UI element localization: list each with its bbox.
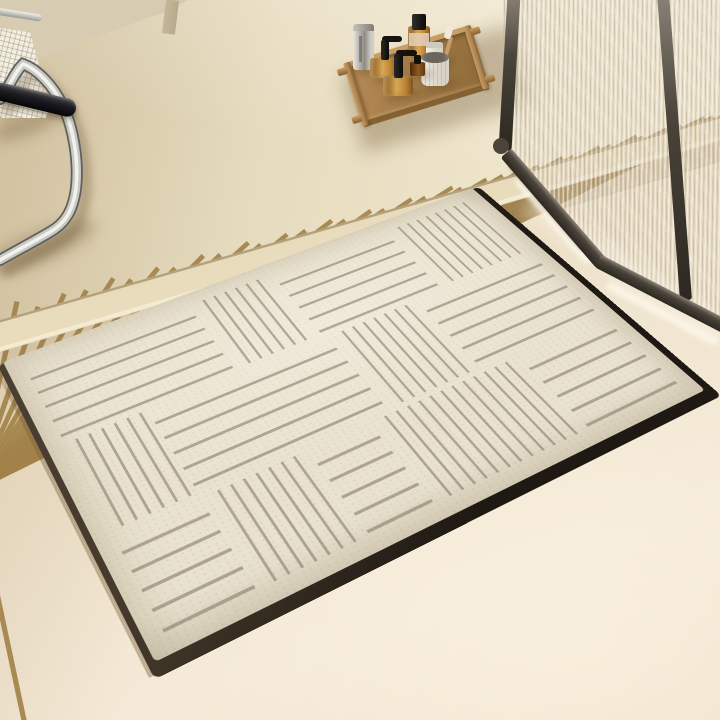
shower-screen-frame — [0, 0, 720, 720]
frame-rounded-corner — [493, 138, 509, 154]
bathroom-scene — [0, 0, 720, 720]
frame-bottom-bar-a — [501, 148, 608, 268]
frame-bottom-bar-b — [595, 255, 720, 333]
frame-left-bar — [499, 0, 521, 150]
frame-middle-bar — [657, 0, 692, 300]
